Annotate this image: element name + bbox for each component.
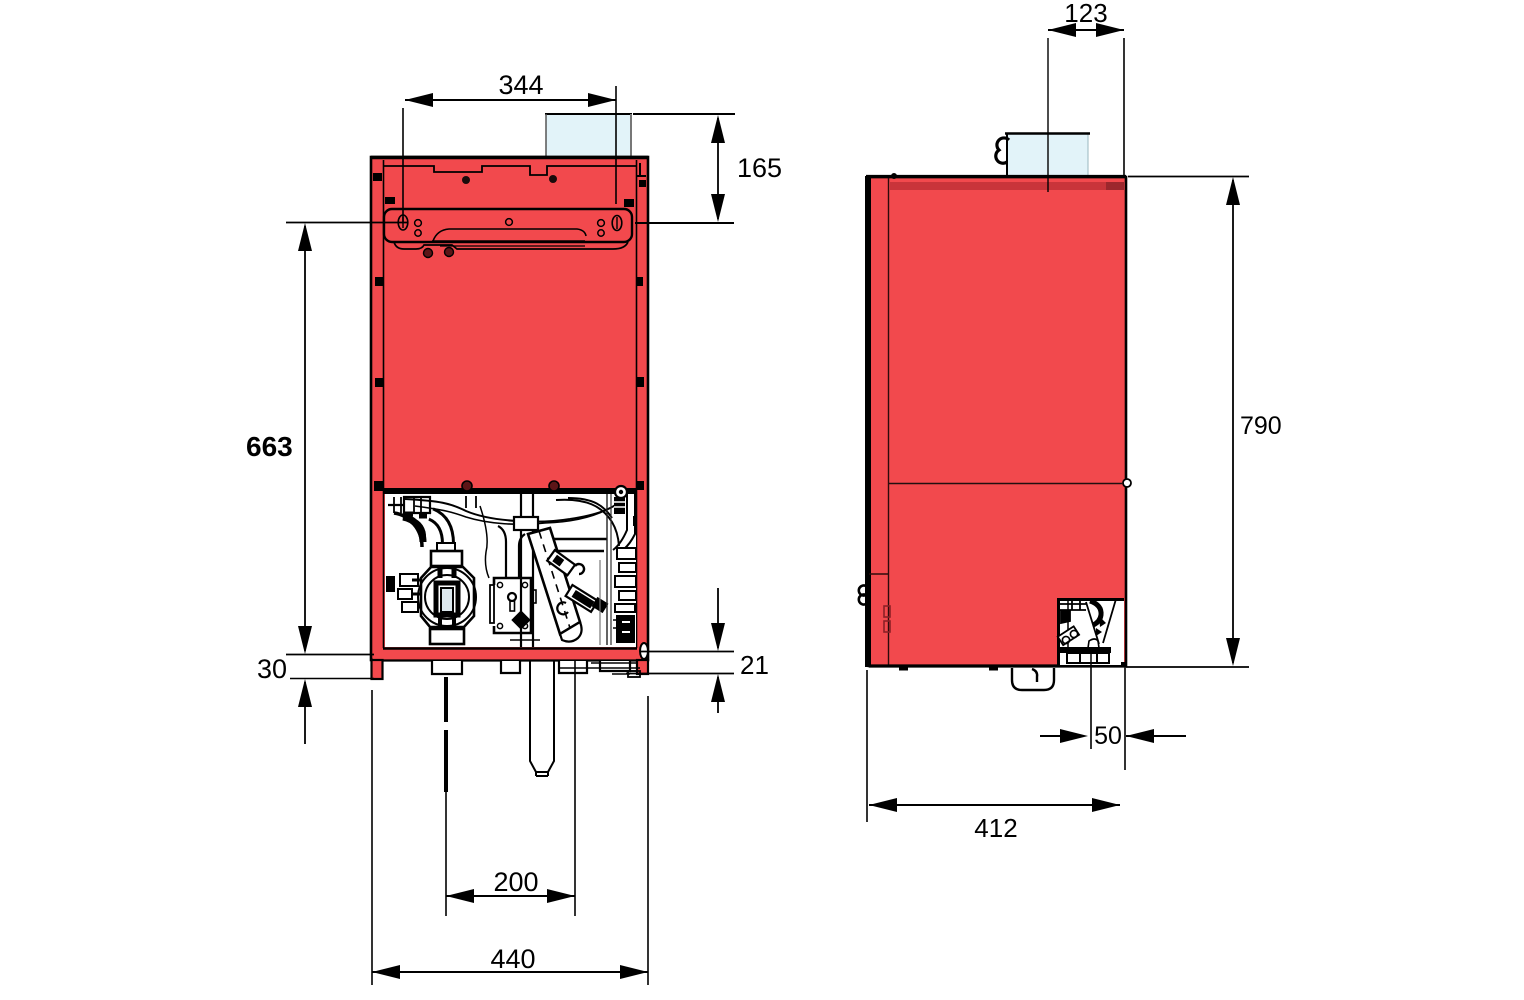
svg-text:165: 165 xyxy=(737,153,782,183)
svg-text:663: 663 xyxy=(246,431,293,462)
svg-text:200: 200 xyxy=(493,867,538,897)
svg-text:344: 344 xyxy=(498,70,543,100)
svg-text:790: 790 xyxy=(1240,412,1282,440)
svg-text:21: 21 xyxy=(740,650,769,680)
svg-text:50: 50 xyxy=(1094,722,1122,750)
svg-text:412: 412 xyxy=(974,813,1017,843)
svg-text:30: 30 xyxy=(257,654,287,684)
svg-text:123: 123 xyxy=(1064,0,1107,28)
svg-text:440: 440 xyxy=(490,944,535,974)
